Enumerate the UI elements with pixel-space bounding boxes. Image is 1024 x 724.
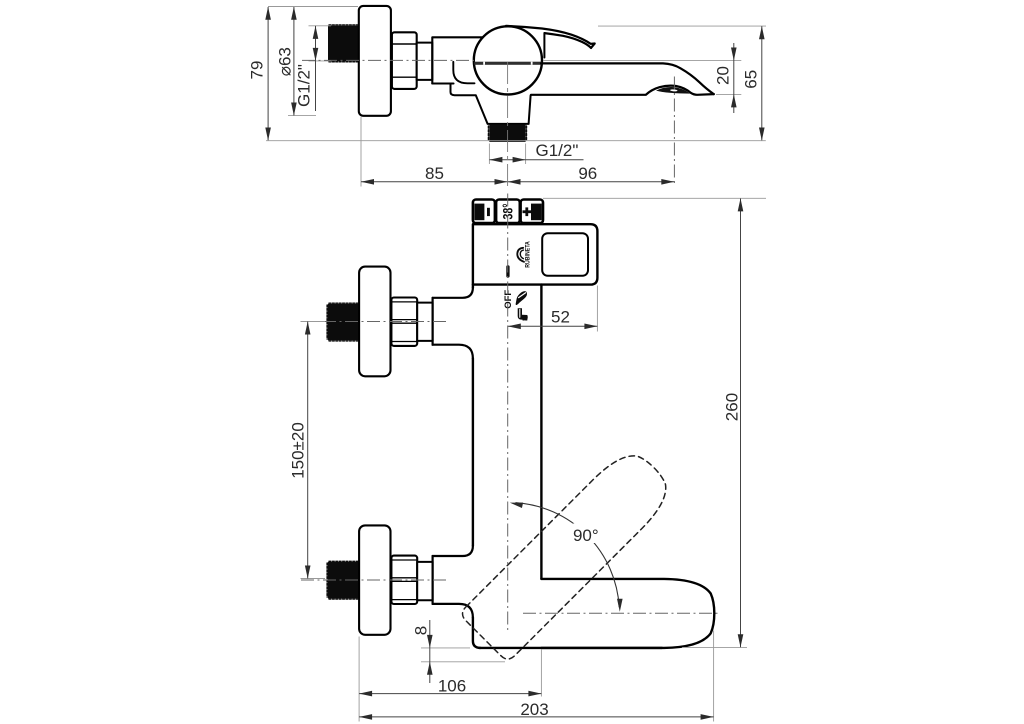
svg-text:96: 96: [578, 164, 597, 183]
svg-text:RUBINETA: RUBINETA: [524, 241, 531, 268]
svg-text:52: 52: [551, 307, 570, 326]
svg-text:106: 106: [438, 676, 466, 695]
svg-text:20: 20: [714, 66, 733, 85]
svg-text:260: 260: [723, 393, 742, 421]
svg-text:⌀63: ⌀63: [275, 47, 294, 76]
svg-text:65: 65: [741, 70, 760, 89]
svg-text:OFF: OFF: [503, 290, 514, 309]
svg-text:79: 79: [248, 61, 267, 80]
svg-text:150±20: 150±20: [288, 422, 307, 479]
svg-text:203: 203: [520, 700, 548, 719]
svg-text:G1/2": G1/2": [294, 64, 313, 107]
svg-text:90°: 90°: [573, 526, 599, 545]
svg-text:85: 85: [425, 164, 444, 183]
svg-text:8: 8: [411, 626, 430, 635]
svg-text:G1/2": G1/2": [536, 141, 579, 160]
